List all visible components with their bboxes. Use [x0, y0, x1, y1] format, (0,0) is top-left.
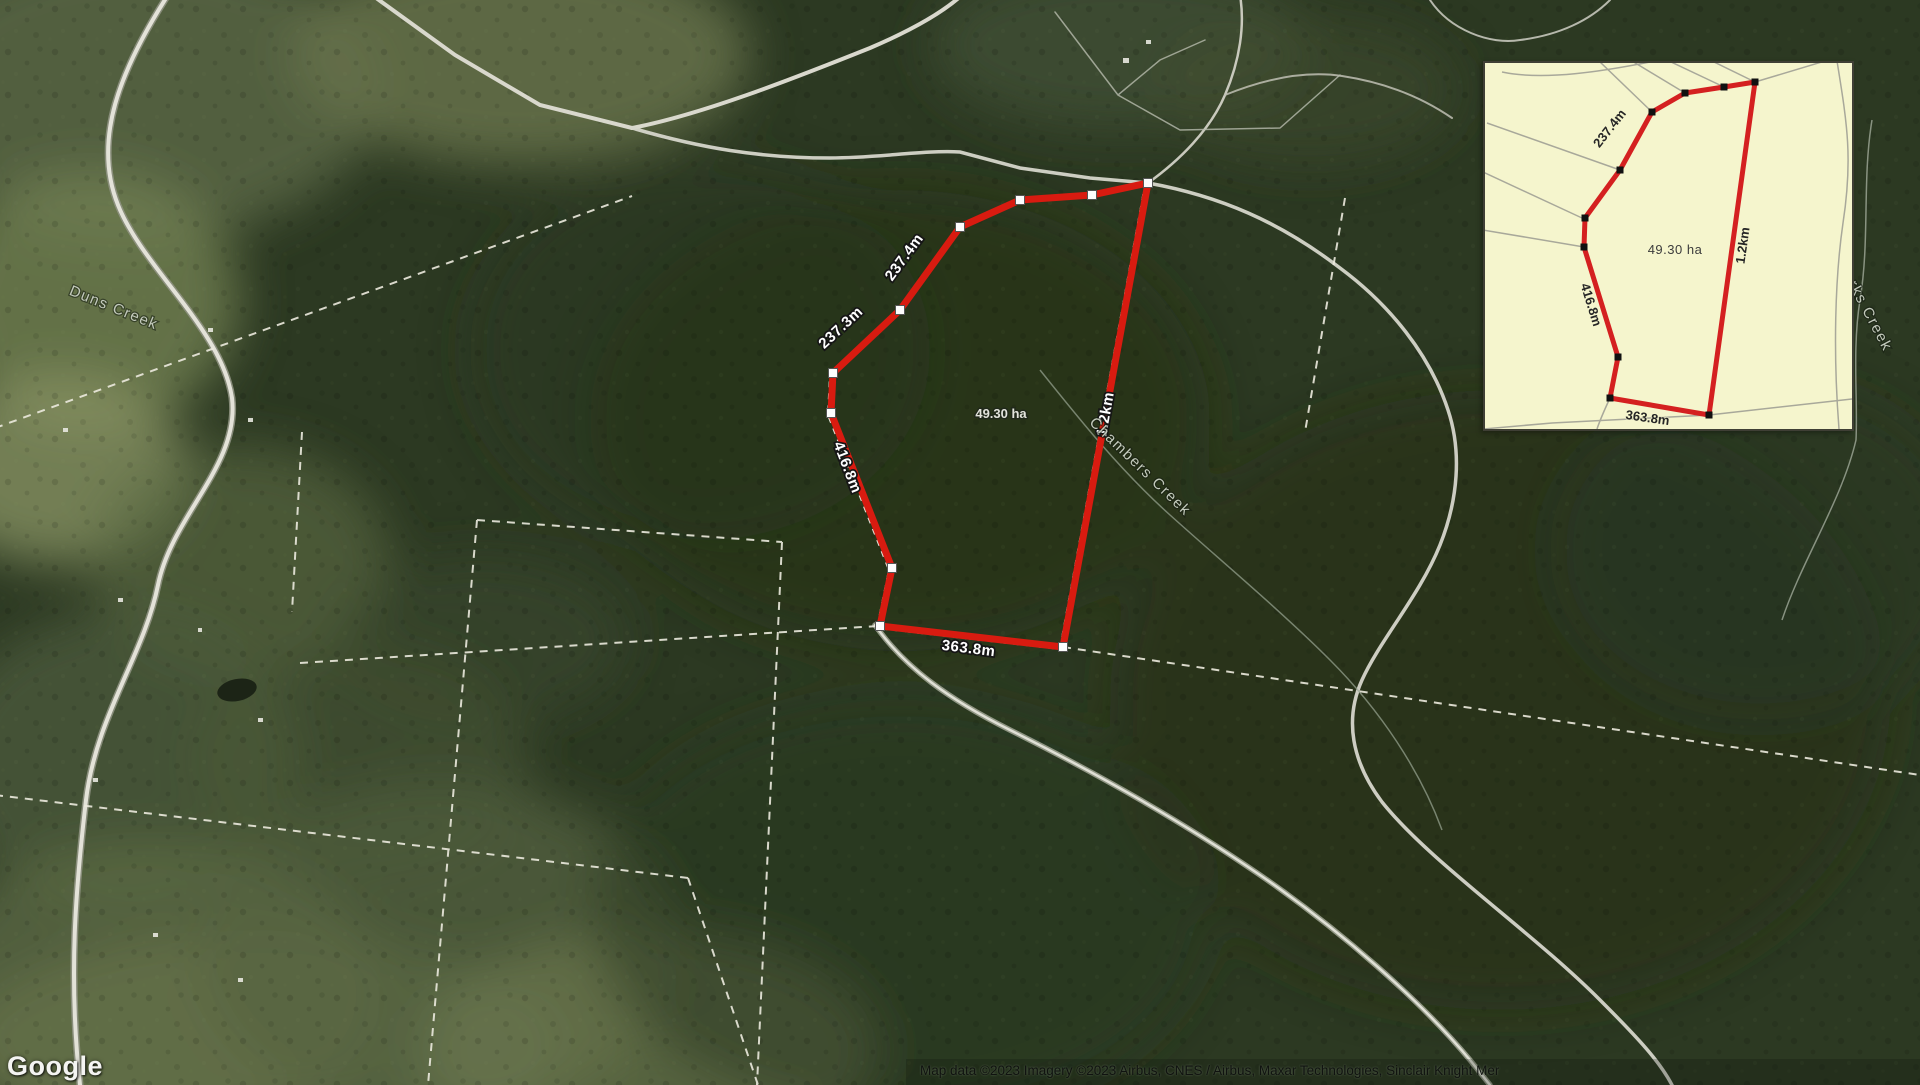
inset-measurement-label-north: 237.4m — [1590, 106, 1629, 150]
vertex-marker — [1721, 84, 1728, 91]
overview-inset-map: 237.4m 416.8m 363.8m 1.2km 49.30 ha — [1483, 61, 1854, 431]
vertex-marker — [1649, 109, 1656, 116]
inset-area-label: 49.30 ha — [1648, 242, 1703, 257]
vertex-marker — [1016, 196, 1025, 205]
vertex-marker — [896, 306, 905, 315]
inset-boundary-polygon: 237.4m 416.8m 363.8m 1.2km 49.30 ha — [1578, 79, 1759, 429]
vertex-marker — [956, 223, 965, 232]
vertex-marker — [1617, 167, 1624, 174]
vertex-marker — [1752, 79, 1759, 86]
vertex-marker — [1059, 643, 1068, 652]
vertex-marker — [1706, 412, 1713, 419]
vertex-marker — [888, 564, 897, 573]
map-viewport[interactable]: 237.4m 237.3m 416.8m 363.8m 1.2km 49.30 … — [0, 0, 1920, 1085]
vertex-marker — [876, 622, 885, 631]
vertex-marker — [1607, 395, 1614, 402]
vertex-marker — [1615, 354, 1622, 361]
area-label: 49.30 ha — [975, 406, 1027, 421]
vertex-marker — [827, 409, 836, 418]
vertex-marker — [1682, 90, 1689, 97]
vertex-marker — [1144, 179, 1153, 188]
inset-measurement-label-south: 363.8m — [1625, 407, 1671, 428]
vertex-marker — [1088, 191, 1097, 200]
google-watermark[interactable]: Google — [7, 1051, 103, 1082]
vertex-marker — [1581, 244, 1588, 251]
vertex-marker — [1582, 215, 1589, 222]
vertex-marker — [829, 369, 838, 378]
map-attribution: Map data ©2023 Imagery ©2023 Airbus, CNE… — [920, 1063, 1920, 1078]
